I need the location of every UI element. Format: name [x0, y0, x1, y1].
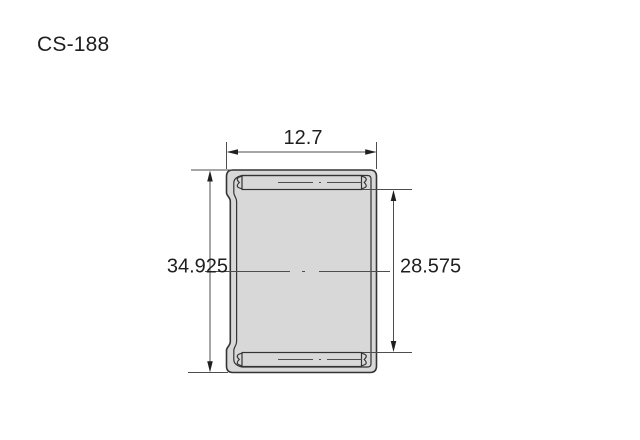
dimension-outer-diameter-value: 34.925 [167, 256, 228, 278]
outer-arrowhead-up [207, 171, 213, 182]
inner-arrowhead-down [391, 341, 397, 352]
dimension-width-value: 12.7 [284, 127, 323, 149]
outer-arrowhead-down [207, 361, 213, 372]
technical-drawing: CS-188 [0, 0, 640, 440]
width-arrowhead-left [227, 149, 238, 155]
bearing-cross-section [205, 170, 390, 373]
dimension-width: 12.7 [227, 127, 377, 169]
inner-arrowhead-up [391, 190, 397, 201]
drawing-sheet: CS-188 [0, 0, 640, 440]
width-arrowhead-right [365, 149, 376, 155]
dimension-inner-diameter-value: 28.575 [400, 256, 461, 278]
dimension-outer-diameter: 34.925 [167, 170, 232, 373]
part-number-label: CS-188 [37, 33, 109, 56]
